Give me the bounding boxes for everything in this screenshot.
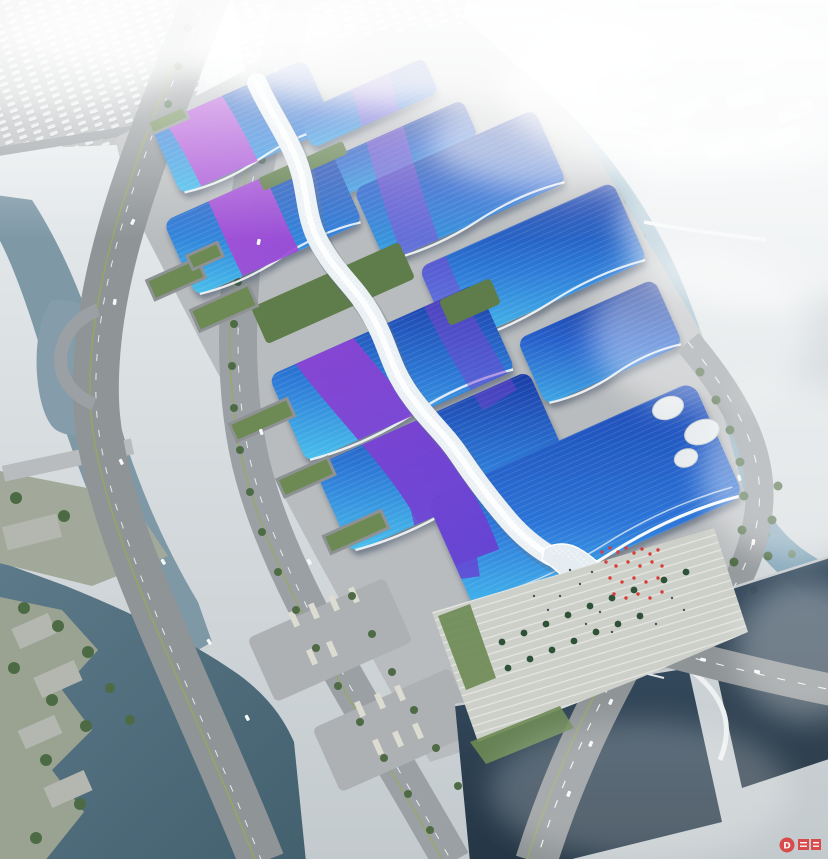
aerial-rendering-canvas: D [0, 0, 828, 859]
watermark-symbol: D [783, 842, 790, 852]
scene-svg: D [0, 0, 828, 859]
